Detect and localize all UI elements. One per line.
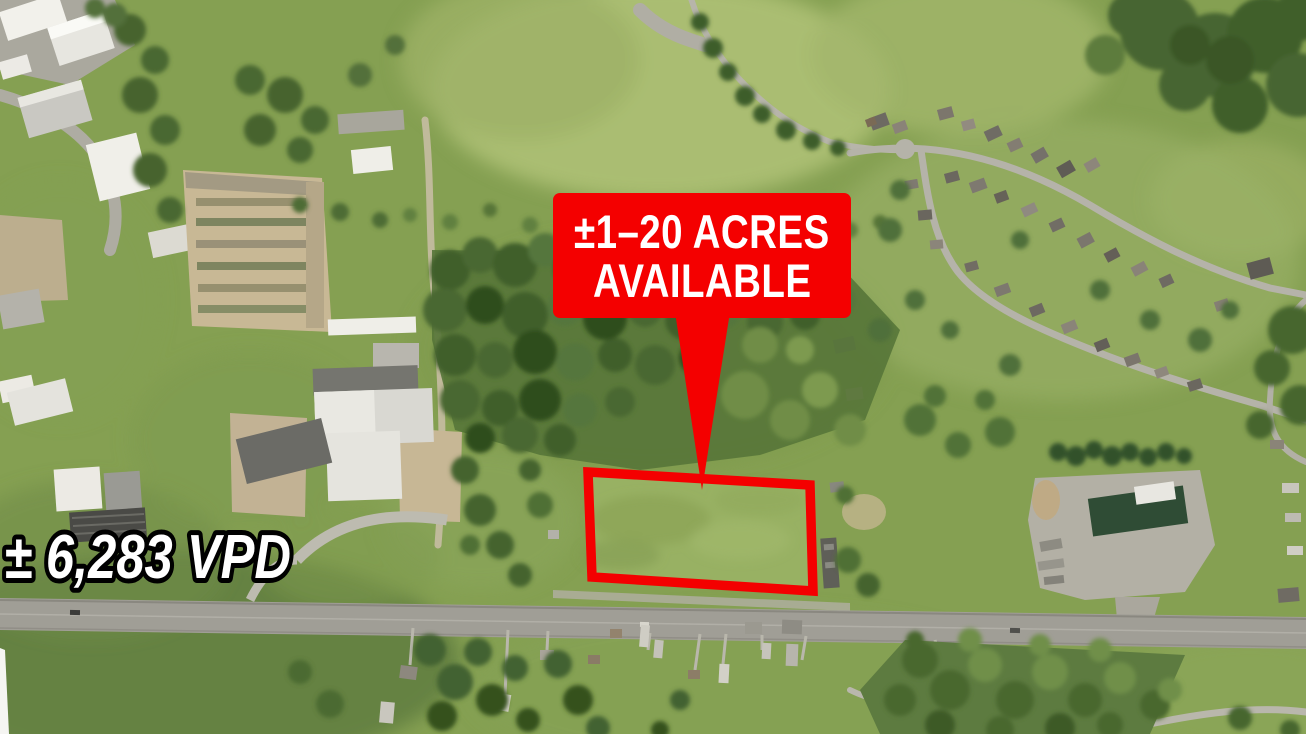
traffic-count-overlay: ± 6,283 VPD: [0, 0, 1306, 734]
aerial-flyer: ±1–20 ACRES AVAILABLE ± 6,283 VPD: [0, 0, 1306, 734]
traffic-count-label: ± 6,283 VPD: [4, 523, 291, 592]
